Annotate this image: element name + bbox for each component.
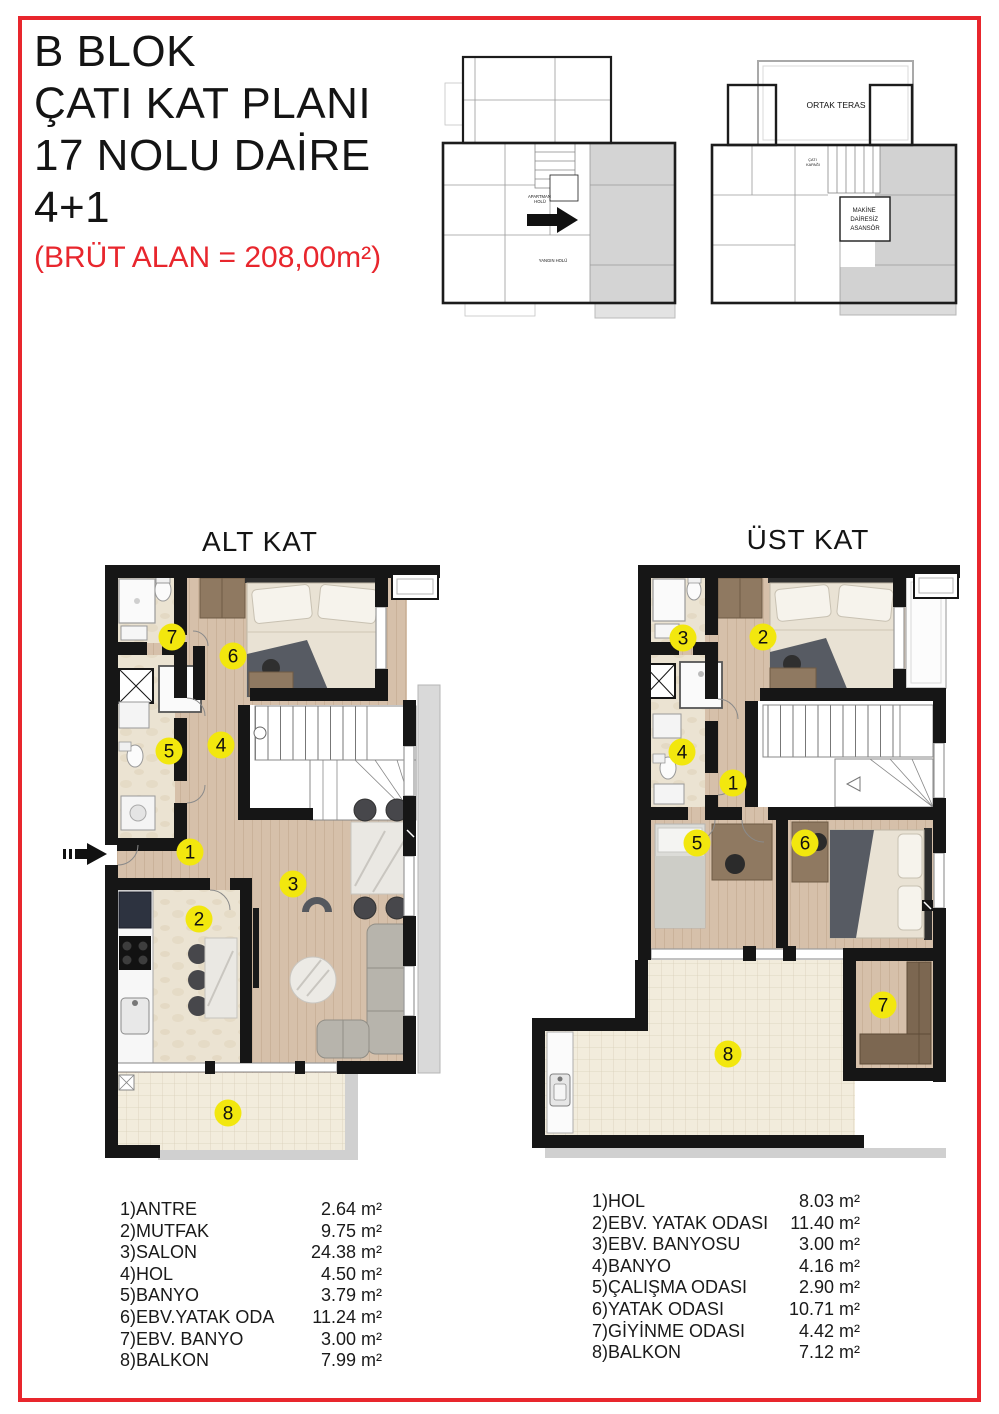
title-line-plan: ÇATI KAT PLANI	[34, 78, 381, 130]
svg-text:7: 7	[878, 996, 889, 1017]
kitchen-appliances	[119, 892, 151, 1034]
key-plan-left-stairs-icon	[535, 143, 578, 201]
gross-area-note: (BRÜT ALAN = 208,00m²)	[34, 240, 381, 276]
balcony-sink-icon	[550, 1074, 570, 1106]
title-line-block: B BLOK	[34, 26, 381, 78]
svg-text:6: 6	[800, 834, 811, 855]
room-area: 10.71 m²	[789, 1299, 860, 1321]
svg-text:4: 4	[216, 736, 227, 757]
room-label: 3)SALON	[120, 1242, 197, 1264]
legend-row: 7)GİYİNME ODASI4.42 m²	[592, 1321, 860, 1343]
svg-text:1: 1	[185, 843, 196, 864]
legend-row: 7)EBV. BANYO3.00 m²	[120, 1329, 382, 1351]
room-label: 1)ANTRE	[120, 1199, 197, 1221]
room-label: 3)EBV. BANYOSU	[592, 1234, 740, 1256]
legend-row: 2)MUTFAK9.75 m²	[120, 1221, 382, 1243]
ust-kat-floor-plan: 1 2 3 4 5 6 7 8	[530, 556, 975, 1171]
alt-kat-floor-plan: 1 2 3 4 5 6 7 8	[55, 556, 450, 1171]
svg-text:5: 5	[164, 742, 175, 763]
key-plan-right-terrace-strip	[840, 303, 956, 315]
legend-alt-kat: 1)ANTRE2.64 m² 2)MUTFAK9.75 m² 3)SALON24…	[120, 1199, 382, 1372]
svg-text:3: 3	[678, 629, 689, 650]
room-label: 6)YATAK ODASI	[592, 1299, 724, 1321]
key-plan-left-unit-highlight	[590, 143, 675, 318]
room-area: 4.50 m²	[321, 1264, 382, 1286]
legend-row: 1)ANTRE2.64 m²	[120, 1199, 382, 1221]
unit-direction-arrow-mini	[527, 207, 578, 233]
tv-icon	[253, 908, 259, 988]
svg-text:8: 8	[223, 1104, 234, 1125]
kitchen-table-icon	[188, 938, 237, 1018]
key-plan-floor-overview: APARTMAN HOLÜ YANGIN HOLÜ	[435, 55, 685, 325]
legend-row: 6)YATAK ODASI10.71 m²	[592, 1299, 860, 1321]
room-area: 11.24 m²	[312, 1307, 382, 1329]
title-block: B BLOK ÇATI KAT PLANI 17 NOLU DAİRE 4+1 …	[34, 26, 381, 276]
room-label: 7)EBV. BANYO	[120, 1329, 243, 1351]
coffee-table-icon	[290, 957, 336, 1003]
room-label: 8)BALKON	[592, 1342, 681, 1364]
room-label: 4)HOL	[120, 1264, 173, 1286]
room-label: 2)MUTFAK	[120, 1221, 209, 1243]
legend-row: 4)HOL4.50 m²	[120, 1264, 382, 1286]
room-area: 2.90 m²	[799, 1277, 860, 1299]
title-line-type: 4+1	[34, 182, 381, 234]
legend-row: 4)BANYO4.16 m²	[592, 1256, 860, 1278]
apartman-holu-label: APARTMAN HOLÜ	[528, 194, 552, 204]
room-area: 4.42 m²	[799, 1321, 860, 1343]
legend-row: 3)SALON24.38 m²	[120, 1242, 382, 1264]
ust-gray-strip	[545, 1148, 946, 1158]
key-plan-right-stairs-icon	[828, 145, 880, 193]
radiator-box-2	[914, 573, 958, 598]
room-area: 9.75 m²	[321, 1221, 382, 1243]
legend-ust-kat: 1)HOL8.03 m² 2)EBV. YATAK ODASI11.40 m² …	[592, 1191, 860, 1364]
makine-dairesiz-asansor-box: MAKİNE DAİRESİZ ASANSÖR	[840, 197, 890, 241]
yangin-holu-label: YANGIN HOLÜ	[539, 258, 568, 263]
legend-row: 8)BALKON7.12 m²	[592, 1342, 860, 1364]
svg-text:2: 2	[758, 628, 769, 649]
legend-row: 5)BANYO3.79 m²	[120, 1285, 382, 1307]
room-label: 1)HOL	[592, 1191, 645, 1213]
room-label: 2)EBV. YATAK ODASI	[592, 1213, 768, 1235]
entrance-arrow	[63, 843, 107, 865]
room-area: 7.99 m²	[321, 1350, 382, 1372]
svg-text:MAKİNE DAİRESİZ AS: MAKİNE DAİRESİZ ASANSÖR	[850, 207, 880, 232]
room-label: 5)ÇALIŞMA ODASI	[592, 1277, 747, 1299]
room-area: 3.79 m²	[321, 1285, 382, 1307]
wardrobe-icon-2	[718, 578, 762, 618]
study-desk-icon	[712, 824, 772, 880]
ortak-teras-label: ORTAK TERAS	[806, 100, 865, 110]
legend-row: 1)HOL8.03 m²	[592, 1191, 860, 1213]
legend-row: 8)BALKON7.99 m²	[120, 1350, 382, 1372]
room-area: 24.38 m²	[311, 1242, 382, 1264]
legend-row: 6)EBV.YATAK ODA11.24 m²	[120, 1307, 382, 1329]
bedroom6-bed-icon	[830, 828, 932, 940]
room-area: 3.00 m²	[321, 1329, 382, 1351]
room-label: 6)EBV.YATAK ODA	[120, 1307, 274, 1329]
ust-kat-heading: ÜST KAT	[698, 524, 918, 556]
legend-row: 5)ÇALIŞMA ODASI2.90 m²	[592, 1277, 860, 1299]
svg-text:5: 5	[692, 834, 703, 855]
room-area: 2.64 m²	[321, 1199, 382, 1221]
shaft-icon	[119, 669, 153, 703]
svg-text:1: 1	[728, 774, 739, 795]
room-area: 3.00 m²	[799, 1234, 860, 1256]
svg-text:6: 6	[228, 647, 239, 668]
legend-row: 3)EBV. BANYOSU3.00 m²	[592, 1234, 860, 1256]
room-label: 4)BANYO	[592, 1256, 671, 1278]
svg-text:4: 4	[677, 743, 688, 764]
svg-text:7: 7	[167, 628, 178, 649]
room-label: 5)BANYO	[120, 1285, 199, 1307]
key-plan-roof-overview: ORTAK TERAS MAKİNE DAİRESİZ ASANSÖR ÇATI…	[700, 55, 970, 325]
room-label: 8)BALKON	[120, 1350, 209, 1372]
alt-kat-heading: ALT KAT	[150, 526, 370, 558]
svg-text:2: 2	[194, 910, 205, 931]
title-line-unit: 17 NOLU DAİRE	[34, 130, 381, 182]
balcony-corner-box	[119, 1075, 134, 1090]
radiator-box	[392, 574, 438, 599]
room-area: 11.40 m²	[790, 1213, 860, 1235]
room-area: 8.03 m²	[799, 1191, 860, 1213]
cati-kapagi-label: ÇATI KAPAĞI	[806, 158, 820, 167]
legend-row: 2)EBV. YATAK ODASI11.40 m²	[592, 1213, 860, 1235]
svg-text:8: 8	[723, 1045, 734, 1066]
svg-text:3: 3	[288, 875, 299, 896]
room-area: 7.12 m²	[799, 1342, 860, 1364]
room-label: 7)GİYİNME ODASI	[592, 1321, 745, 1343]
room-area: 4.16 m²	[799, 1256, 860, 1278]
wardrobe-icon	[200, 578, 245, 618]
